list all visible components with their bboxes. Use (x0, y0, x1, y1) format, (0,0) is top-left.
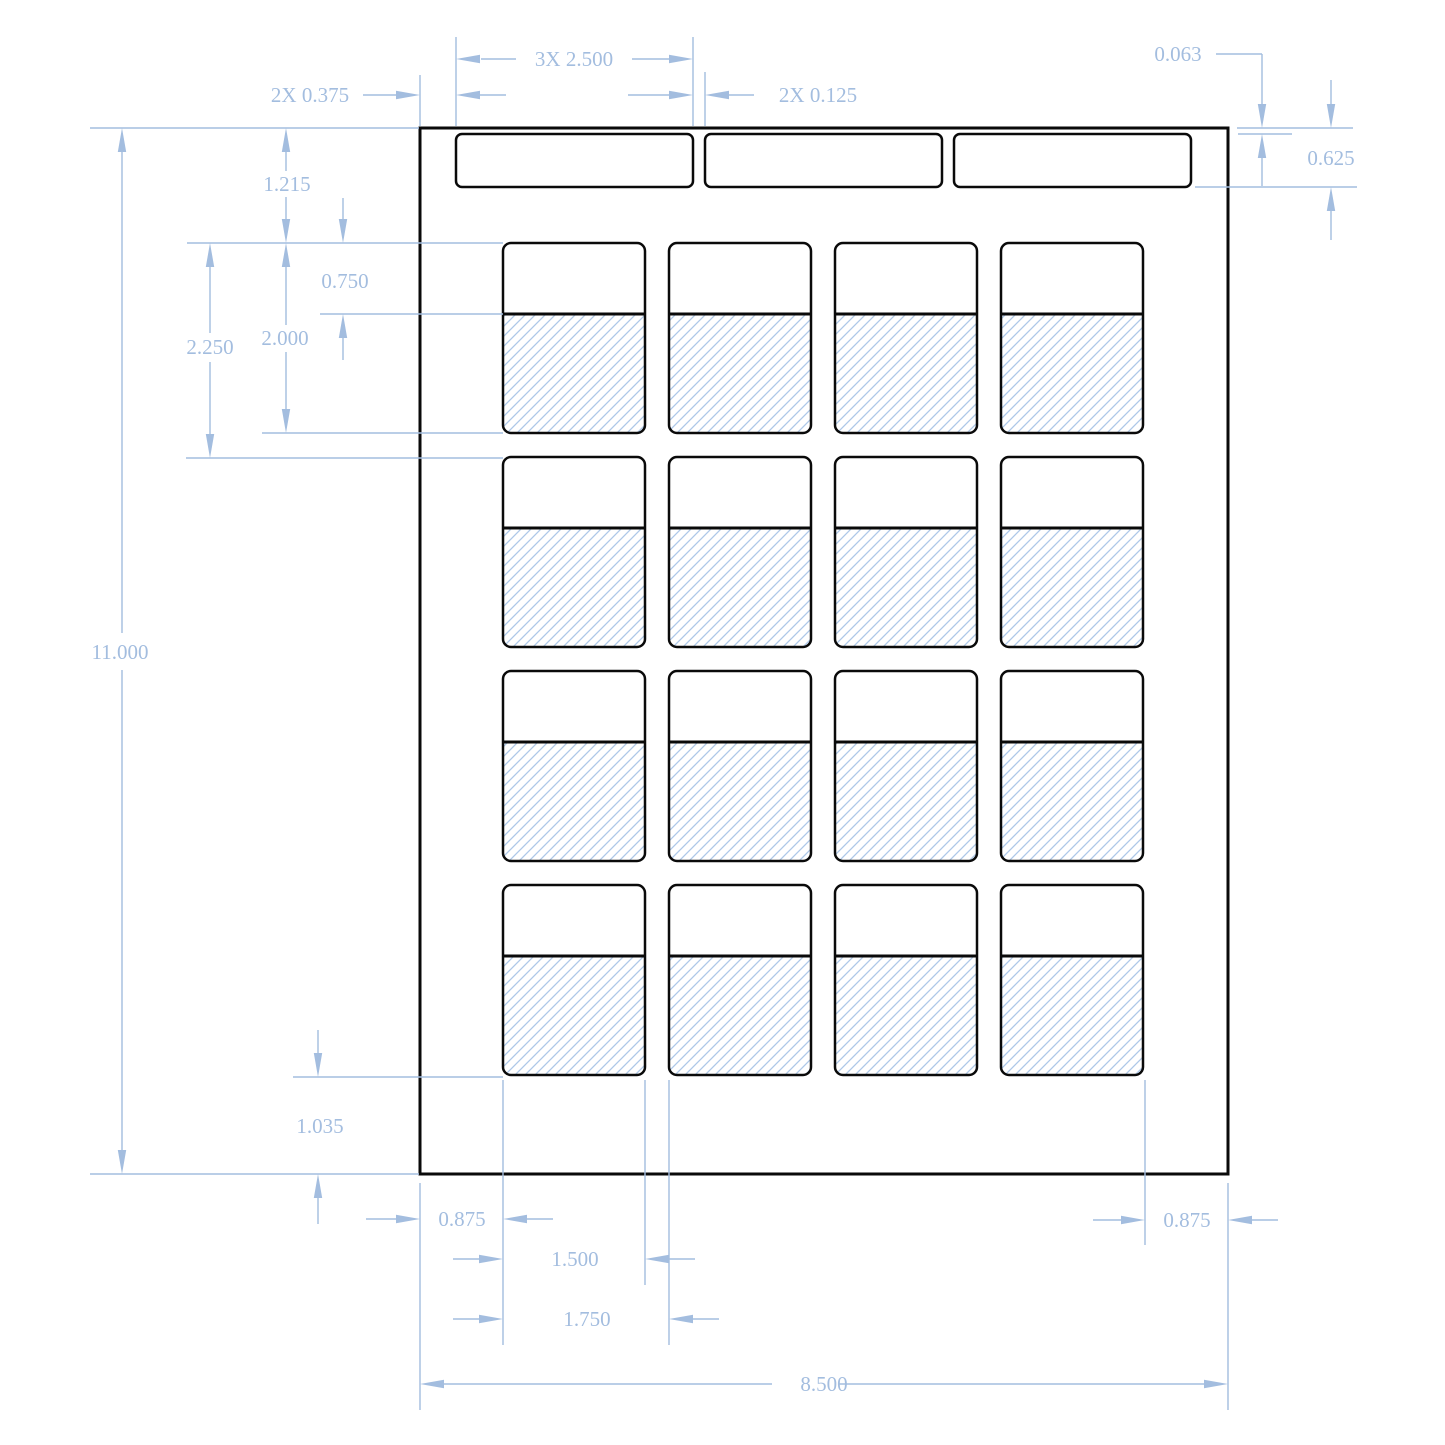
dimension-arrow (669, 55, 693, 63)
dimension-arrow (479, 1315, 503, 1323)
label-r2-c2 (669, 457, 811, 647)
label-hatch-area (669, 528, 811, 647)
label-r2-c1 (503, 457, 645, 647)
dimension-arrow (282, 128, 290, 152)
dimension-arrow (396, 1215, 420, 1223)
dimension-arrow (339, 219, 347, 243)
header-strip-2 (705, 134, 942, 187)
label-hatch-area (503, 742, 645, 861)
dimension-arrow (314, 1053, 322, 1077)
dimension-label: 2.000 (261, 326, 308, 350)
label-r4-c1 (503, 885, 645, 1075)
dimension-arrow (705, 91, 729, 99)
dimension-arrow (314, 1174, 322, 1198)
label-hatch-area (835, 956, 977, 1075)
dimension-arrow (1121, 1216, 1145, 1224)
dimension-label: 0.625 (1307, 146, 1354, 170)
dimension-label: 1.750 (563, 1307, 610, 1331)
dieline-drawing: 3X 2.5002X 0.3752X 0.1250.0630.6251.2150… (0, 0, 1445, 1445)
drawing-svg: 3X 2.5002X 0.3752X 0.1250.0630.6251.2150… (0, 0, 1445, 1445)
dimension-arrow (282, 219, 290, 243)
dimension-label: 0.875 (438, 1207, 485, 1231)
label-hatch-area (1001, 314, 1143, 433)
dimension-arrow (339, 314, 347, 338)
label-hatch-area (503, 956, 645, 1075)
label-hatch-area (1001, 742, 1143, 861)
label-r1-c3 (835, 243, 977, 433)
dimension-label: 1.035 (296, 1114, 343, 1138)
label-r2-c3 (835, 457, 977, 647)
label-r3-c4 (1001, 671, 1143, 861)
dimension-arrow (669, 91, 693, 99)
header-strip-1 (456, 134, 693, 187)
dimension-label: 1.500 (551, 1247, 598, 1271)
dimension-arrow (118, 1150, 126, 1174)
dimension-arrow (456, 55, 480, 63)
dimension-label: 2X 0.375 (271, 83, 349, 107)
dimension-label: 11.000 (92, 640, 149, 664)
label-hatch-area (503, 314, 645, 433)
dimension-arrow (1228, 1216, 1252, 1224)
label-hatch-area (835, 742, 977, 861)
label-hatch-area (669, 956, 811, 1075)
dimension-arrow (645, 1255, 669, 1263)
dimension-arrow (503, 1215, 527, 1223)
dimension-arrow (282, 243, 290, 267)
dimension-arrow (1258, 134, 1266, 158)
dimension-arrow (669, 1315, 693, 1323)
dimension-arrow (1258, 104, 1266, 128)
label-hatch-area (1001, 956, 1143, 1075)
dimension-arrow (420, 1380, 444, 1388)
label-r1-c2 (669, 243, 811, 433)
label-hatch-area (835, 528, 977, 647)
dimension-arrow (282, 409, 290, 433)
label-hatch-area (1001, 528, 1143, 647)
dimension-label: 8.500 (800, 1372, 847, 1396)
dimension-arrow (456, 91, 480, 99)
label-r4-c4 (1001, 885, 1143, 1075)
label-r3-c2 (669, 671, 811, 861)
dimension-arrow (396, 91, 420, 99)
dimension-label: 2X 0.125 (779, 83, 857, 107)
label-hatch-area (503, 528, 645, 647)
header-strip-3 (954, 134, 1191, 187)
label-hatch-area (835, 314, 977, 433)
dimension-label: 0.750 (321, 269, 368, 293)
dimension-arrow (1327, 104, 1335, 128)
label-r1-c1 (503, 243, 645, 433)
dimension-label: 3X 2.500 (535, 47, 613, 71)
label-hatch-area (669, 742, 811, 861)
dimension-arrow (1204, 1380, 1228, 1388)
label-r4-c2 (669, 885, 811, 1075)
dimension-arrow (206, 434, 214, 458)
label-r1-c4 (1001, 243, 1143, 433)
dimension-label: 0.063 (1154, 42, 1201, 66)
label-hatch-area (669, 314, 811, 433)
dimension-label: 1.215 (263, 172, 310, 196)
dimension-arrow (206, 243, 214, 267)
dimension-arrow (1327, 187, 1335, 211)
label-r3-c1 (503, 671, 645, 861)
label-r3-c3 (835, 671, 977, 861)
dimension-label: 2.250 (186, 335, 233, 359)
dimension-arrow (479, 1255, 503, 1263)
dimension-arrow (118, 128, 126, 152)
label-r4-c3 (835, 885, 977, 1075)
label-r2-c4 (1001, 457, 1143, 647)
dimension-label: 0.875 (1163, 1208, 1210, 1232)
